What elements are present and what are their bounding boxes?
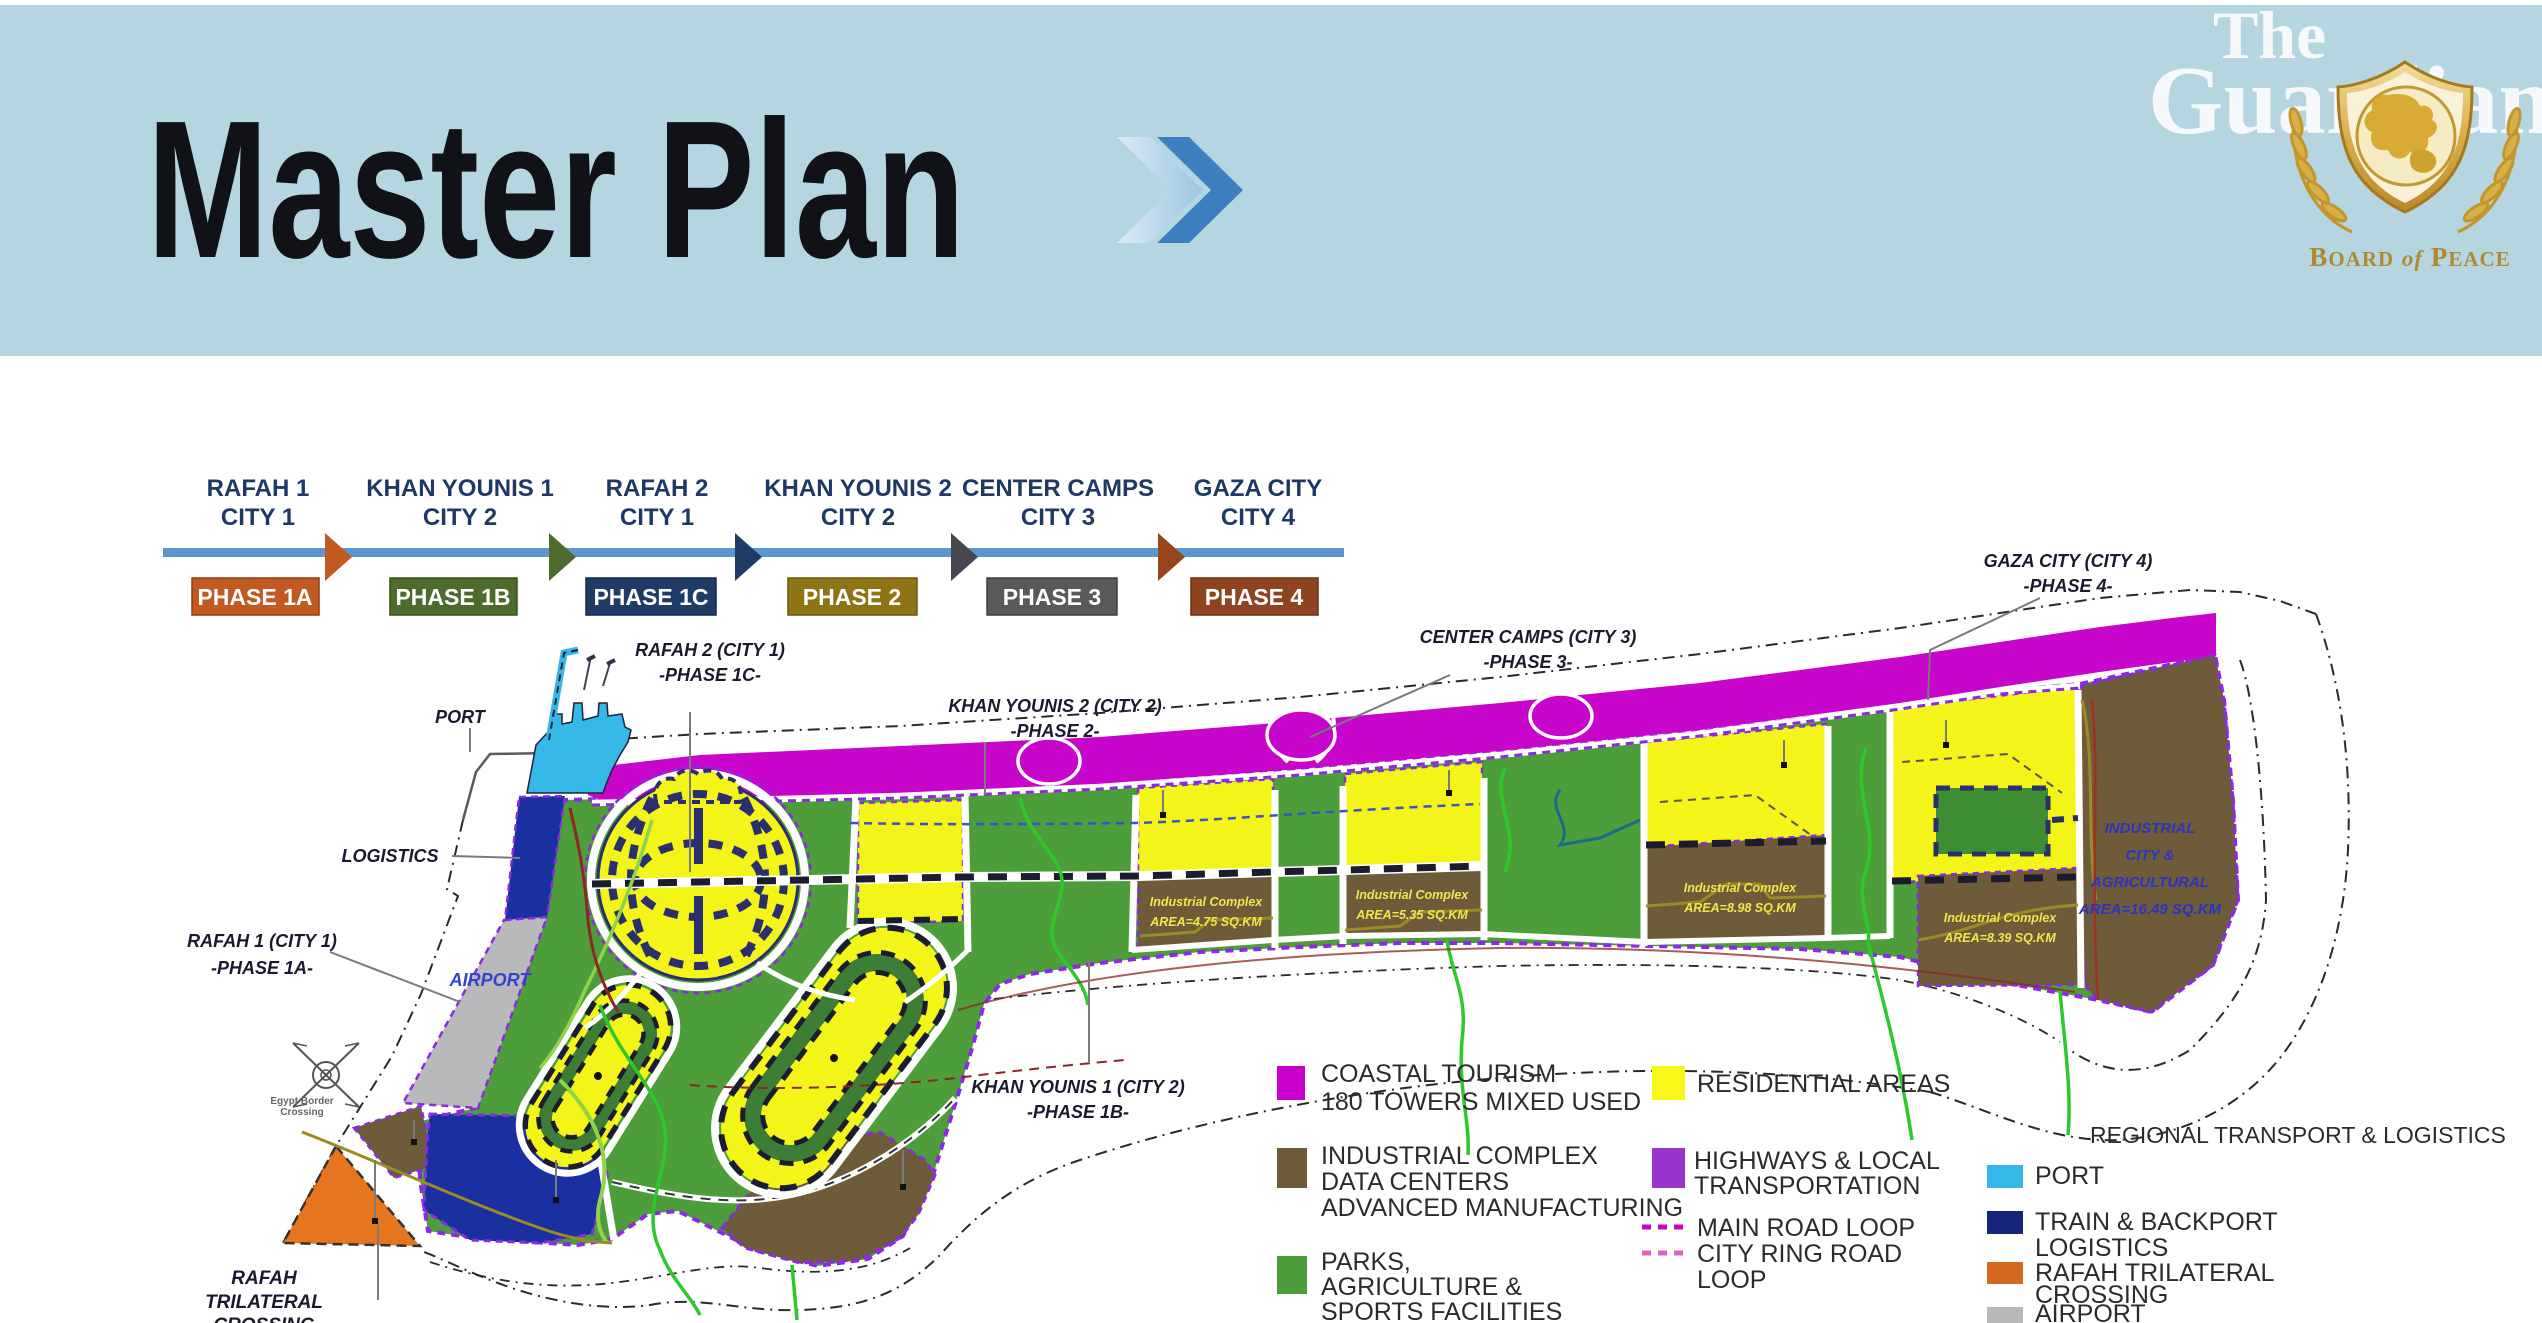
svg-text:KHAN YOUNIS 2 (CITY 2): KHAN YOUNIS 2 (CITY 2) — [948, 696, 1161, 716]
svg-text:BOARD of PEACE: BOARD of PEACE — [2309, 242, 2510, 272]
svg-text:-PHASE 3-: -PHASE 3- — [1483, 652, 1572, 672]
svg-text:PORT: PORT — [2035, 1162, 2104, 1190]
svg-text:CENTER CAMPS: CENTER CAMPS — [962, 475, 1154, 502]
svg-text:CITY RING ROAD: CITY RING ROAD — [1697, 1240, 1902, 1268]
svg-text:RAFAH 2 (CITY 1): RAFAH 2 (CITY 1) — [635, 640, 785, 660]
svg-text:SPORTS FACILITIES: SPORTS FACILITIES — [1321, 1298, 1562, 1323]
svg-text:KHAN YOUNIS 1 (CITY 2): KHAN YOUNIS 1 (CITY 2) — [971, 1077, 1184, 1097]
svg-text:TRILATERAL: TRILATERAL — [205, 1292, 323, 1313]
svg-text:RAFAH 1: RAFAH 1 — [207, 475, 310, 502]
svg-text:REGIONAL TRANSPORT & LOGISTICS: REGIONAL TRANSPORT & LOGISTICS — [2090, 1122, 2506, 1148]
svg-text:AREA=5.35 SQ.KM: AREA=5.35 SQ.KM — [1355, 908, 1468, 922]
svg-text:CITY 1: CITY 1 — [221, 504, 295, 531]
svg-text:RAFAH: RAFAH — [231, 1268, 298, 1289]
svg-text:PHASE 1B: PHASE 1B — [395, 584, 510, 610]
svg-text:-PHASE 1A-: -PHASE 1A- — [211, 958, 313, 978]
svg-text:CITY 1: CITY 1 — [620, 504, 694, 531]
svg-text:AREA=16.49 SQ.KM: AREA=16.49 SQ.KM — [2078, 901, 2222, 918]
svg-text:TRANSPORTATION: TRANSPORTATION — [1694, 1172, 1920, 1200]
svg-text:PORT: PORT — [435, 707, 487, 727]
svg-text:RAFAH 1 (CITY 1): RAFAH 1 (CITY 1) — [187, 931, 337, 951]
svg-text:CITY &: CITY & — [2126, 847, 2175, 864]
svg-text:CITY 3: CITY 3 — [1021, 504, 1095, 531]
svg-text:PHASE 2: PHASE 2 — [803, 584, 901, 610]
svg-text:GAZA CITY (CITY 4): GAZA CITY (CITY 4) — [1984, 551, 2153, 571]
svg-text:DATA CENTERS: DATA CENTERS — [1321, 1168, 1509, 1196]
svg-text:AIRPORT: AIRPORT — [2035, 1300, 2146, 1323]
svg-text:PHASE 1C: PHASE 1C — [593, 584, 708, 610]
svg-text:AREA=8.98 SQ.KM: AREA=8.98 SQ.KM — [1683, 901, 1796, 915]
svg-text:-PHASE 1B-: -PHASE 1B- — [1027, 1102, 1129, 1122]
svg-text:PARKS,: PARKS, — [1321, 1248, 1411, 1276]
svg-text:TRAIN & BACKPORT: TRAIN & BACKPORT — [2035, 1208, 2278, 1236]
svg-text:Industrial Complex: Industrial Complex — [1944, 911, 2058, 925]
svg-text:HIGHWAYS & LOCAL: HIGHWAYS & LOCAL — [1694, 1147, 1940, 1175]
svg-text:LOOP: LOOP — [1697, 1266, 1766, 1294]
svg-text:180 TOWERS MIXED USED: 180 TOWERS MIXED USED — [1321, 1088, 1641, 1116]
svg-text:AREA=8.39 SQ.KM: AREA=8.39 SQ.KM — [1943, 931, 2056, 945]
svg-text:CITY 4: CITY 4 — [1221, 504, 1296, 531]
svg-text:AGRICULTURAL: AGRICULTURAL — [2090, 874, 2209, 891]
svg-text:INDUSTRIAL COMPLEX: INDUSTRIAL COMPLEX — [1321, 1142, 1598, 1170]
svg-text:KHAN YOUNIS 1: KHAN YOUNIS 1 — [366, 475, 554, 502]
svg-text:CENTER CAMPS (CITY 3): CENTER CAMPS (CITY 3) — [1420, 627, 1637, 647]
svg-text:RESIDENTIAL AREAS: RESIDENTIAL AREAS — [1697, 1070, 1950, 1098]
svg-text:LOGISTICS: LOGISTICS — [341, 846, 438, 866]
svg-text:LOGISTICS: LOGISTICS — [2035, 1234, 2168, 1262]
svg-text:-PHASE 2-: -PHASE 2- — [1010, 721, 1099, 741]
svg-text:Crossing: Crossing — [280, 1107, 323, 1118]
svg-text:COASTAL TOURISM: COASTAL TOURISM — [1321, 1060, 1556, 1088]
svg-text:AREA=4.75 SQ.KM: AREA=4.75 SQ.KM — [1149, 915, 1262, 929]
svg-text:Egypt Border: Egypt Border — [270, 1096, 333, 1107]
svg-text:Industrial Complex: Industrial Complex — [1356, 888, 1470, 902]
svg-text:CROSSING: CROSSING — [213, 1315, 315, 1323]
svg-text:CITY 2: CITY 2 — [821, 504, 895, 531]
svg-text:MAIN ROAD LOOP: MAIN ROAD LOOP — [1697, 1214, 1915, 1242]
svg-text:AGRICULTURE &: AGRICULTURE & — [1321, 1273, 1522, 1301]
svg-text:-PHASE 1C-: -PHASE 1C- — [659, 665, 761, 685]
svg-text:INDUSTRIAL: INDUSTRIAL — [2105, 820, 2196, 837]
svg-text:RAFAH 2: RAFAH 2 — [606, 475, 709, 502]
svg-text:PHASE 3: PHASE 3 — [1003, 584, 1101, 610]
svg-text:Master Plan: Master Plan — [147, 80, 965, 299]
svg-text:AIRPORT: AIRPORT — [449, 970, 533, 990]
svg-text:PHASE 1A: PHASE 1A — [197, 584, 312, 610]
svg-text:CITY 2: CITY 2 — [423, 504, 497, 531]
svg-text:Industrial Complex: Industrial Complex — [1150, 895, 1264, 909]
svg-text:ADVANCED MANUFACTURING: ADVANCED MANUFACTURING — [1321, 1194, 1683, 1222]
svg-text:GAZA CITY: GAZA CITY — [1194, 475, 1322, 502]
svg-text:Industrial Complex: Industrial Complex — [1684, 881, 1798, 895]
svg-text:KHAN YOUNIS 2: KHAN YOUNIS 2 — [764, 475, 952, 502]
svg-text:-PHASE 4-: -PHASE 4- — [2023, 576, 2112, 596]
svg-text:PHASE 4: PHASE 4 — [1205, 584, 1304, 610]
